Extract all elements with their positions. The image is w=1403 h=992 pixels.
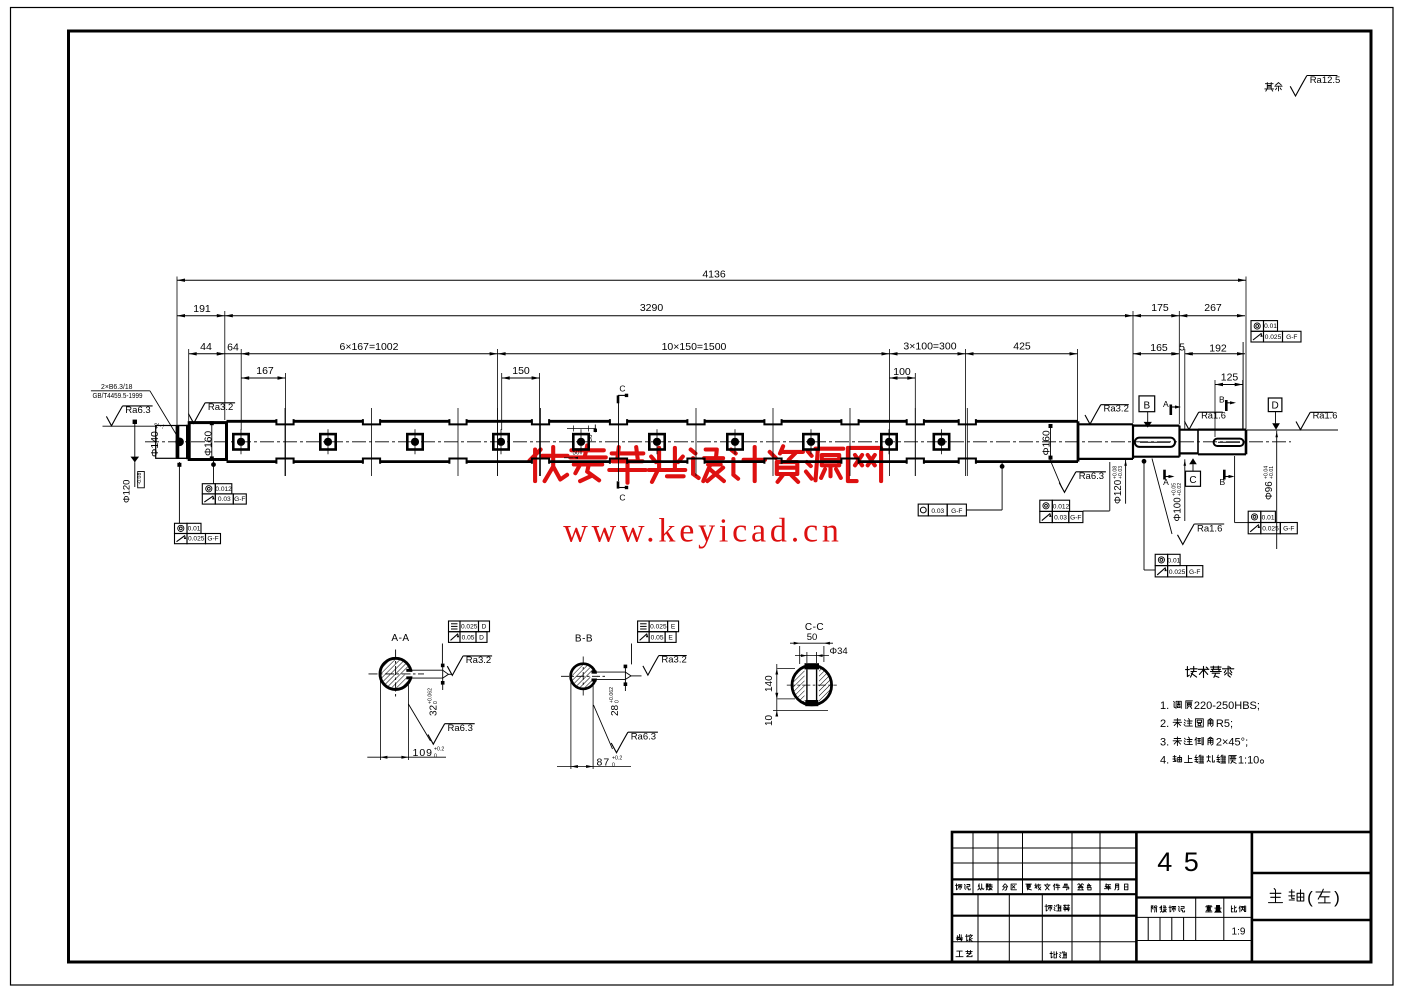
svg-text:28: 28	[610, 704, 621, 716]
svg-text:0: 0	[615, 700, 621, 703]
svg-text:0.012: 0.012	[215, 486, 232, 493]
svg-text:GB/T4459.5-1999: GB/T4459.5-1999	[93, 393, 143, 400]
svg-text:0.01: 0.01	[188, 525, 201, 532]
svg-text:4.: 4.	[1160, 755, 1169, 767]
svg-text:6×167=1002: 6×167=1002	[340, 341, 399, 353]
svg-text:175: 175	[1151, 302, 1169, 314]
svg-text:Ra6.3: Ra6.3	[125, 405, 150, 416]
svg-text:+0.2: +0.2	[434, 747, 444, 753]
svg-text:Φ140: Φ140	[149, 431, 161, 457]
svg-text:Ra3.2: Ra3.2	[466, 655, 491, 666]
svg-text:D: D	[482, 624, 487, 631]
svg-text:G-F: G-F	[234, 496, 245, 503]
svg-text:1.: 1.	[1160, 700, 1169, 712]
svg-text:Ra3.2: Ra3.2	[1104, 404, 1129, 415]
svg-text:125: 125	[1221, 372, 1239, 384]
svg-text:0: 0	[433, 701, 439, 704]
svg-text:B: B	[1143, 400, 1150, 411]
svg-text:32: 32	[429, 704, 440, 716]
svg-text:G-F: G-F	[1070, 515, 1081, 522]
svg-text:0.025: 0.025	[650, 624, 667, 631]
svg-text:3290: 3290	[640, 302, 664, 314]
svg-text:150: 150	[512, 365, 530, 377]
svg-text:1:10: 1:10	[1238, 755, 1259, 767]
svg-text:0.05: 0.05	[462, 634, 475, 641]
svg-text:Φ100: Φ100	[1172, 497, 1183, 522]
svg-text:C: C	[1189, 475, 1196, 486]
svg-text:425: 425	[1013, 341, 1031, 353]
svg-text:0.025: 0.025	[1262, 526, 1279, 533]
svg-text:0: 0	[434, 754, 437, 760]
svg-text:+0.02: +0.02	[1177, 483, 1183, 496]
svg-text:Φ160: Φ160	[204, 431, 215, 456]
svg-text:2.: 2.	[1160, 718, 1169, 730]
svg-text:Φ34: Φ34	[830, 646, 848, 657]
svg-text:Ra3.2: Ra3.2	[208, 402, 233, 413]
svg-text:220-250HBS;: 220-250HBS;	[1194, 700, 1260, 712]
svg-text:50: 50	[573, 450, 580, 457]
svg-text:D: D	[479, 634, 484, 641]
svg-text:100: 100	[893, 366, 911, 378]
svg-text:0: 0	[612, 763, 615, 769]
svg-text:Ra6.3: Ra6.3	[448, 723, 473, 734]
svg-text:): )	[1334, 888, 1340, 907]
svg-text:140: 140	[764, 675, 775, 692]
svg-text:(: (	[1307, 888, 1313, 907]
svg-text:A: A	[1163, 477, 1169, 487]
svg-text:30: 30	[587, 434, 594, 441]
svg-text:C: C	[619, 493, 625, 503]
svg-text:G-F: G-F	[1286, 334, 1297, 341]
svg-text:+0.01: +0.01	[1269, 466, 1275, 479]
svg-text:87: 87	[597, 757, 611, 769]
svg-text:Ra1.6: Ra1.6	[1313, 411, 1338, 421]
svg-text:Φ120: Φ120	[122, 480, 133, 503]
svg-text:4136: 4136	[702, 269, 726, 281]
svg-text:A: A	[1163, 399, 1169, 409]
svg-text:50: 50	[807, 632, 818, 643]
svg-text:R5;: R5;	[1216, 718, 1233, 730]
svg-text:0.025: 0.025	[461, 624, 478, 631]
svg-text:Ra3.2: Ra3.2	[661, 655, 686, 666]
svg-text:0.01: 0.01	[1167, 558, 1180, 565]
svg-text:0.01: 0.01	[1262, 514, 1275, 521]
svg-text:10: 10	[764, 714, 775, 726]
svg-text:G-F: G-F	[951, 508, 962, 515]
svg-text:0.03: 0.03	[218, 496, 231, 503]
svg-text:191: 191	[193, 303, 211, 315]
svg-text:0.01: 0.01	[1264, 323, 1277, 330]
svg-text:0.025: 0.025	[1169, 569, 1186, 576]
svg-text:0.03: 0.03	[1054, 515, 1067, 522]
svg-text:0.03: 0.03	[931, 508, 944, 515]
svg-text:D: D	[1271, 401, 1278, 412]
svg-text:44: 44	[200, 341, 212, 353]
svg-text:Ra6.3: Ra6.3	[631, 732, 656, 743]
svg-text:64: 64	[227, 342, 239, 354]
svg-text:-1: -1	[160, 424, 166, 429]
svg-text:Ra1.6: Ra1.6	[1201, 410, 1226, 420]
svg-text:Ra1.6: Ra1.6	[1197, 523, 1222, 534]
svg-text:+0.03: +0.03	[1118, 466, 1124, 479]
svg-text:5: 5	[1179, 342, 1185, 354]
svg-text:0.025: 0.025	[1265, 334, 1282, 341]
svg-text:G-F: G-F	[1189, 569, 1200, 576]
svg-text:G-F: G-F	[207, 536, 218, 543]
svg-text:192: 192	[1209, 343, 1227, 355]
svg-text:0.012: 0.012	[1053, 503, 1070, 510]
svg-text:267: 267	[1204, 302, 1222, 314]
svg-text:165: 165	[1150, 342, 1168, 354]
svg-text:0.025: 0.025	[188, 536, 205, 543]
svg-text:Ra6.3: Ra6.3	[1079, 471, 1104, 482]
svg-text:C: C	[619, 384, 625, 394]
svg-text:3.: 3.	[1160, 737, 1169, 749]
svg-text:-0.08: -0.08	[137, 473, 143, 485]
svg-text:167: 167	[256, 365, 274, 377]
svg-text:www.keyicad.cn: www.keyicad.cn	[563, 513, 842, 550]
svg-text:3×100=300: 3×100=300	[903, 341, 956, 353]
svg-text:2×45°;: 2×45°;	[1216, 737, 1248, 749]
svg-text:B: B	[1219, 477, 1225, 487]
svg-text:E: E	[668, 634, 673, 641]
svg-text:Φ120: Φ120	[1113, 479, 1124, 504]
svg-text:109: 109	[413, 747, 434, 759]
svg-text:A-A: A-A	[391, 633, 409, 644]
svg-text:B: B	[1219, 394, 1225, 404]
svg-text:0.05: 0.05	[651, 634, 664, 641]
svg-text:Φ96: Φ96	[1264, 481, 1275, 500]
svg-text:10×150=1500: 10×150=1500	[662, 341, 727, 353]
svg-text:4 5: 4 5	[1157, 847, 1201, 877]
svg-text:E: E	[671, 624, 676, 631]
svg-text:1:9: 1:9	[1232, 927, 1246, 938]
svg-text:Ra12.5: Ra12.5	[1310, 75, 1341, 86]
svg-text:Φ160: Φ160	[1042, 430, 1053, 455]
svg-text:G-F: G-F	[1283, 526, 1294, 533]
svg-text:+0.2: +0.2	[612, 756, 622, 762]
svg-text:2×B6.3/18: 2×B6.3/18	[101, 384, 133, 391]
svg-text:B-B: B-B	[575, 634, 593, 645]
